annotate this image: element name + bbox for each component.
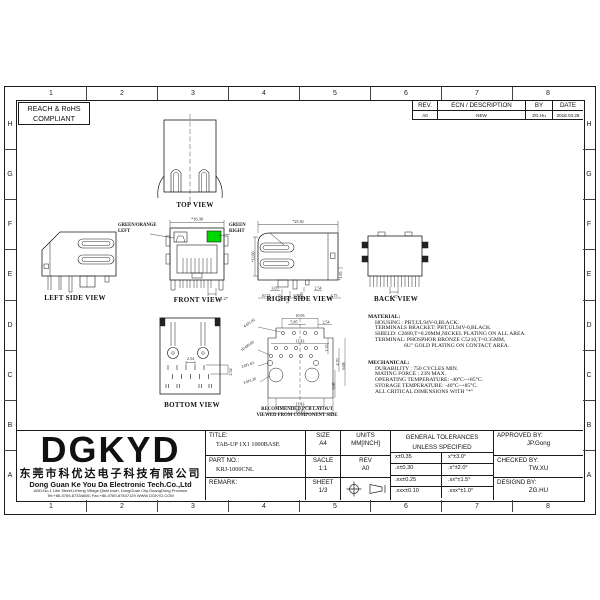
date-value: 2018.03.28: [553, 111, 583, 119]
checked-by-label: CHECKED BY:: [494, 456, 583, 464]
grid-row: H: [4, 100, 16, 150]
units-cell: UNITS MM[INCH] REV A0: [340, 431, 390, 500]
revision-table: REV. ECN / DESCRIPTION BY DATE A0 NEW ZG…: [412, 100, 583, 120]
tolerance-row: .x±0.30 .x°±2.0°: [391, 464, 493, 475]
grid-row: G: [4, 150, 16, 200]
grid-col: 1: [16, 87, 87, 100]
mechanical-notes: MECHANICAL: DURABILITY : 750 CYCLES MIN.…: [368, 361, 580, 395]
tol-linear: x±0.35: [391, 453, 442, 463]
grid-ruler-bottom: 1 2 3 4 5 6 7 8: [16, 500, 583, 512]
right-side-view-drawing: *25.30 *13.60 3.20 3.40 1.30 *1.65 3.05 …: [248, 212, 352, 308]
dim-front-width: *16.30: [191, 217, 203, 222]
pitch-h-dim: [186, 361, 195, 365]
grid-row: D: [583, 301, 595, 351]
ecn-value: NEW: [438, 111, 526, 119]
remark-label: REMARK:: [206, 478, 305, 486]
size-value: A4: [306, 439, 340, 447]
revision-header-row: REV. ECN / DESCRIPTION BY DATE: [412, 100, 583, 111]
led-window-left: [174, 232, 187, 242]
title-label: TITLE:: [206, 431, 305, 439]
hole-callout-d: 2-Ø3.20: [242, 376, 256, 385]
tol-angular: .xxx°±1.0°: [442, 487, 493, 498]
title-cell: TITLE: TAB-UP 1X1 1000BASE PART NO.: KRJ…: [205, 431, 305, 500]
bottom-view-drawing: 2.54 2.54: [146, 312, 238, 404]
tol-angular: .x°±2.0°: [442, 464, 493, 474]
by-col-header: BY: [526, 101, 553, 110]
tolerance-cell: GENERAL TOLERANCES UNLESS SPECIFIED x±0.…: [390, 431, 493, 500]
grid-col: 5: [300, 87, 371, 100]
pcb-holes: [267, 331, 319, 382]
pcb-layout-drawing: 10.93 5.85 2.54 11.43 4-Ø1.02 10-Ø0.89 2…: [236, 310, 352, 420]
tol-linear: .xxx±0.10: [391, 487, 442, 498]
tolerance-header-line2: UNLESS SPECIFIED: [391, 443, 493, 453]
sheet-label: SHEET: [306, 478, 340, 486]
sheet-value: 1/3: [306, 486, 340, 494]
rev-label: REV: [341, 456, 390, 464]
dim-bottom-h: 2.54: [187, 356, 194, 361]
rev-col-header: REV.: [413, 101, 438, 110]
pin-grid: [166, 365, 212, 388]
company-logo: DGKYD: [16, 432, 205, 468]
pin-comb: [370, 276, 419, 287]
pcb-dim-lines: [258, 318, 345, 414]
grid-row: C: [583, 351, 595, 401]
grid-col: 8: [513, 500, 583, 512]
contact-comb: [183, 258, 211, 273]
compliance-line2: COMPLIANT: [19, 114, 89, 124]
size-cell: SIZE A4 SACLE 1:1 SHEET 1/3: [305, 431, 340, 500]
hole-callout-a: 4-Ø1.02: [242, 317, 256, 329]
grid-row: H: [583, 100, 595, 150]
grid-col: 8: [513, 87, 583, 100]
grid-ruler-top: 1 2 3 4 5 6 7 8: [16, 87, 583, 100]
shield-pins: [180, 280, 211, 288]
front-view-label: FRONT VIEW: [150, 296, 246, 304]
right-side-view-label: RIGHT SIDE VIEW: [248, 295, 352, 303]
hole-callout-c: 2-Ø1.63: [240, 360, 254, 369]
grid-col: 3: [158, 87, 229, 100]
dim-pcb-top1: 10.93: [296, 313, 305, 318]
dim-height: *13.60: [251, 252, 256, 263]
tolerance-row: .xxx±0.10 .xxx°±1.0°: [391, 487, 493, 498]
grid-ruler-left: H G F E D C B A: [4, 100, 16, 500]
grid-row: E: [4, 250, 16, 300]
material-line: 6U" GOLD PLATING ON CONTACT AREA.: [368, 344, 580, 350]
grid-col: 6: [371, 87, 442, 100]
tolerance-header-line1: GENERAL TOLERANCES: [391, 433, 493, 443]
grid-col: 6: [371, 500, 442, 512]
top-view-label: TOP VIEW: [148, 201, 242, 209]
top-view-drawing: [148, 110, 242, 206]
third-angle-projection-symbol: [344, 481, 388, 497]
title-value: TAB-UP 1X1 1000BASE: [206, 439, 305, 448]
units-value: MM[INCH]: [341, 439, 390, 447]
front-view-drawing: *16.30 1.27 GREEN/ORANGE LEFT GREEN RIGH…: [108, 212, 248, 302]
company-name-cn: 东莞市科优达电子科技有限公司: [16, 468, 205, 480]
grid-row: E: [583, 250, 595, 300]
grid-col: 1: [16, 500, 87, 512]
by-value: ZG.Hu: [526, 111, 553, 119]
title-block: DGKYD 东莞市科优达电子科技有限公司 Dong Guan Ke You Da…: [16, 430, 583, 500]
revision-data-row: A0 NEW ZG.Hu 2018.03.28: [412, 111, 583, 120]
compliance-badge: REACH & RoHS COMPLIANT: [18, 102, 90, 125]
grid-col: 4: [229, 87, 300, 100]
material-notes: MATERIAL: HOUSING : PBT,UL94V-0,BLACK. T…: [368, 315, 580, 349]
pitch-dim-line: [390, 287, 398, 294]
tol-linear: .xx±0.25: [391, 476, 442, 486]
annotation-led-left-2: LEFT: [118, 229, 131, 234]
tolerance-row: x±0.35 x°±3.0°: [391, 453, 493, 464]
grid-col: 5: [300, 500, 371, 512]
dim-pcb-top3: 2.54: [323, 320, 330, 325]
led-window-right-green: [207, 231, 221, 242]
units-label: UNITS: [341, 431, 390, 439]
drawing-sheet: 1 2 3 4 5 6 7 8 1 2 3 4 5 6 7 8 H G F E …: [0, 0, 600, 600]
date-col-header: DATE: [553, 101, 583, 110]
approved-by-label: APPROVED BY:: [494, 431, 583, 439]
dim-b1: 3.05: [272, 286, 279, 291]
approved-by-value: JP.Gong: [494, 439, 583, 447]
part-no-label: PART NO.:: [206, 456, 305, 464]
scale-value: 1:1: [306, 464, 340, 472]
mechanical-line: ALL CRITICAL DIMENSIONS WITH "*": [368, 390, 580, 396]
dim-pcb-r2: 4.70: [335, 359, 340, 366]
dim-pcb-r4: 5.08: [331, 383, 336, 390]
grid-row: B: [4, 401, 16, 451]
grid-col: 7: [442, 500, 513, 512]
hole-callout-b: 10-Ø0.89: [239, 339, 254, 352]
pcb-layout-label: RECOMMENDED PCB LAYOUT VIEWED FROM COMPO…: [230, 407, 364, 418]
grid-col: 2: [87, 87, 158, 100]
dim-v4: *1.65: [338, 272, 343, 281]
compliance-line1: REACH & RoHS: [19, 104, 89, 114]
grid-col: 7: [442, 87, 513, 100]
tolerance-row: .xx±0.25 .xx°±1.5°: [391, 476, 493, 487]
rev-value: A0: [341, 464, 390, 472]
rev-value: A0: [413, 111, 438, 119]
dim-b4: 2.54: [315, 286, 322, 291]
dim-depth: *25.30: [293, 219, 304, 224]
back-view-drawing: 1.27: [352, 220, 440, 300]
grid-row: F: [583, 200, 595, 250]
tol-linear: .x±0.30: [391, 464, 442, 474]
tol-angular: x°±3.0°: [442, 453, 493, 463]
grid-ruler-right: H G F E D C B A: [583, 100, 595, 500]
designed-by-label: DESIGND BY:: [494, 478, 583, 486]
annotation-led-left-1: GREEN/ORANGE: [118, 223, 157, 228]
dim-pcb-r1: 1.35: [324, 345, 329, 352]
pitch-v-dim: [206, 365, 228, 374]
signature-cell: APPROVED BY: JP.Gong CHECKED BY: TW.XU D…: [493, 431, 583, 500]
dim-bottom-v: 2.54: [228, 369, 233, 376]
grid-row: C: [4, 351, 16, 401]
dim-pcb-r3: 6.68: [341, 363, 346, 370]
tol-angular: .xx°±1.5°: [442, 476, 493, 486]
company-contact: Tel:+86-0769-87334606; Fax:+86-0769-8784…: [16, 494, 205, 499]
size-label: SIZE: [306, 431, 340, 439]
bottom-view-label: BOTTOM VIEW: [146, 401, 238, 409]
part-no-value: KRJ-1000CNL: [206, 464, 305, 473]
grid-row: A: [583, 451, 595, 500]
grid-row: B: [583, 401, 595, 451]
dim-pcb-bot1: 11.43: [296, 402, 305, 407]
grid-col: 2: [87, 500, 158, 512]
grid-col: 3: [158, 500, 229, 512]
annotation-led-right-1: GREEN: [229, 223, 246, 228]
pitch-dim-line: [208, 288, 216, 296]
back-view-label: BACK VIEW: [352, 295, 440, 303]
annotation-led-right-2: RIGHT: [229, 229, 246, 234]
designed-by-value: ZG.HU: [494, 486, 583, 494]
grid-row: G: [583, 150, 595, 200]
tolerance-header: GENERAL TOLERANCES UNLESS SPECIFIED: [391, 431, 493, 453]
ecn-col-header: ECN / DESCRIPTION: [438, 101, 526, 110]
company-cell: DGKYD 东莞市科优达电子科技有限公司 Dong Guan Ke You Da…: [16, 431, 205, 500]
checked-by-value: TW.XU: [494, 464, 583, 472]
grid-row: F: [4, 200, 16, 250]
dim-pcb-top2: 5.85: [291, 320, 298, 325]
dim-pcb-mid: 11.43: [296, 339, 305, 344]
scale-label: SACLE: [306, 456, 340, 464]
pcb-layout-label-line2: VIEWED FROM COMPONENT SIDE: [230, 413, 364, 419]
grid-row: A: [4, 451, 16, 500]
grid-row: D: [4, 301, 16, 351]
grid-col: 4: [229, 500, 300, 512]
